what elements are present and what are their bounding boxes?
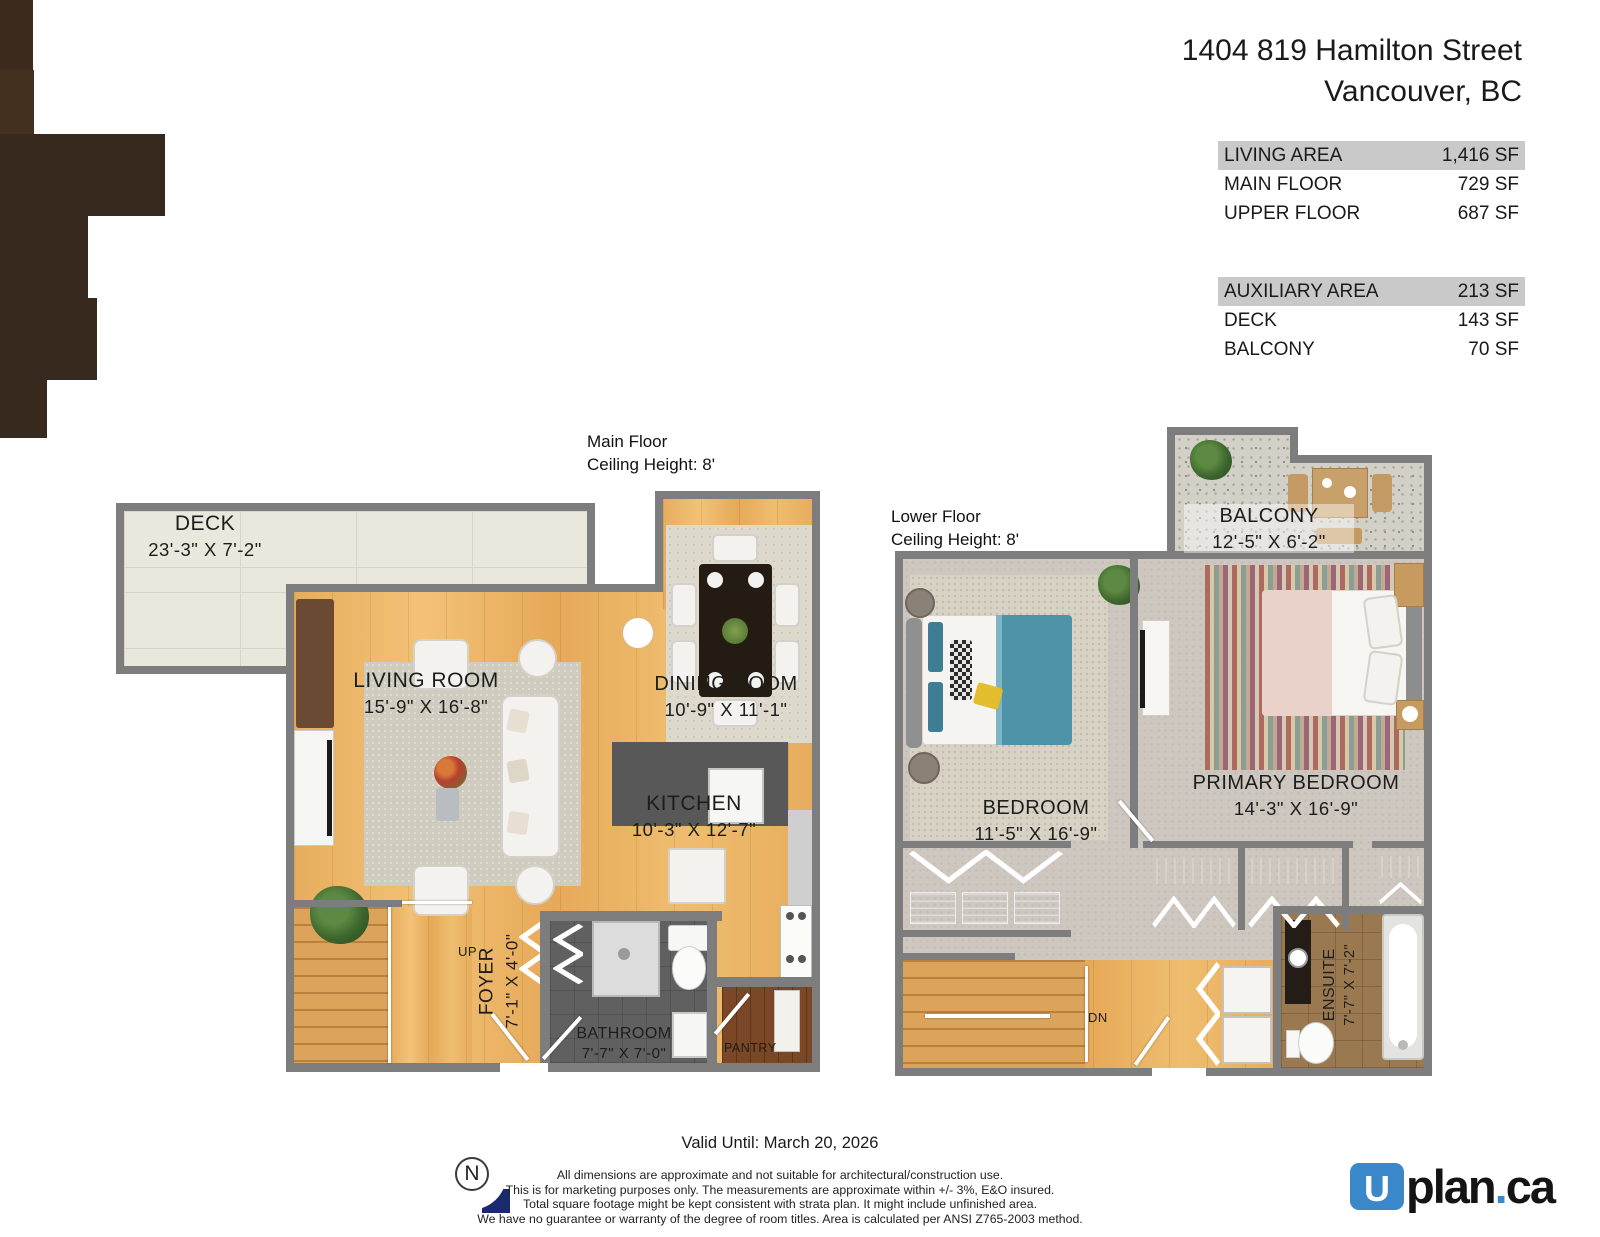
closet-hangers <box>1156 858 1232 884</box>
patio-cup <box>1344 486 1356 498</box>
room-dims: 10'-3" X 12'-7" <box>608 819 780 841</box>
pillow <box>928 622 943 672</box>
address-line1: 1404 819 Hamilton Street <box>1182 30 1522 71</box>
console-cabinet <box>296 599 334 728</box>
wall <box>1143 841 1353 848</box>
bed-headboard <box>906 618 922 748</box>
disclaimer-line: Total square footage might be kept consi… <box>200 1197 1360 1212</box>
area-label: UPPER FLOOR <box>1224 203 1360 225</box>
area-label: LIVING AREA <box>1224 145 1342 167</box>
area-summary-tables: LIVING AREA1,416 SF MAIN FLOOR729 SF UPP… <box>1218 141 1525 364</box>
corner-closet <box>0 380 47 438</box>
plate <box>748 572 764 588</box>
room-name: DINING ROOM <box>640 672 812 696</box>
table-gap <box>1218 228 1525 277</box>
blanket-trim <box>996 615 1002 745</box>
shower-drain <box>618 948 630 960</box>
disclaimer-line: This is for marketing purposes only. The… <box>200 1183 1360 1198</box>
logo-text: plan.ca <box>1406 1159 1554 1214</box>
wire-shelf <box>1014 892 1060 924</box>
bedroom-closet <box>0 134 165 216</box>
room-dims: 15'-9" X 16'-8" <box>340 696 512 718</box>
property-address: 1404 819 Hamilton Street Vancouver, BC <box>1182 30 1522 112</box>
north-letter: N <box>464 1162 479 1186</box>
room-name: LIVING ROOM <box>340 668 512 693</box>
linen-cabinet <box>1222 966 1272 1014</box>
linen-cabinet <box>1222 1016 1272 1064</box>
armchair <box>413 865 469 916</box>
deck-label: DECK 23'-3" X 7'-2" <box>120 511 290 561</box>
caption-line: Lower Floor <box>891 505 1019 528</box>
ensuite-label: ENSUITE 7'-7" X 7'-2" <box>1320 910 1360 1060</box>
area-label: MAIN FLOOR <box>1224 174 1342 196</box>
bifold-door-icon <box>1379 882 1422 904</box>
logo-plan: plan <box>1406 1160 1495 1213</box>
pillow <box>1363 594 1404 650</box>
room-dims: 10'-9" X 11'-1" <box>640 699 812 721</box>
wall <box>587 503 595 592</box>
wall <box>1290 455 1432 463</box>
wall <box>286 584 663 592</box>
nightstand <box>905 588 935 618</box>
room-name: FOYER <box>476 947 497 1015</box>
bifold-door-icon <box>1152 896 1236 928</box>
area-label: AUXILIARY AREA <box>1224 281 1379 303</box>
pantry-label: PANTRY <box>724 1041 777 1055</box>
caption-line: Ceiling Height: 8' <box>587 453 715 476</box>
primary-closet <box>0 216 88 298</box>
wall <box>903 930 1071 937</box>
disclaimer-line: All dimensions are approximate and not s… <box>200 1168 1360 1183</box>
wall <box>286 584 294 1072</box>
wall <box>540 911 722 921</box>
room-name: ENSUITE <box>1320 910 1339 1060</box>
wall <box>1273 906 1281 1076</box>
bathroom-closet <box>0 70 34 134</box>
flower-bouquet <box>434 756 467 789</box>
closet-hangers <box>1381 856 1420 878</box>
wall <box>655 491 663 592</box>
tub-faucet <box>1398 1040 1408 1050</box>
patio-cup <box>1322 478 1332 488</box>
room-dims: 7'-1" X 4'-0" <box>502 899 522 1064</box>
table-row: LIVING AREA1,416 SF <box>1218 141 1525 170</box>
wall <box>717 977 812 987</box>
bed-blanket <box>1000 615 1072 745</box>
address-line2: Vancouver, BC <box>1182 71 1522 112</box>
bathtub-basin <box>1389 924 1417 1048</box>
wall <box>1130 559 1138 848</box>
wall <box>812 491 820 1072</box>
sofa-pillow <box>507 811 530 836</box>
uplan-logo: U plan.ca <box>1350 1159 1554 1214</box>
wall <box>1238 848 1245 930</box>
room-name: PRIMARY BEDROOM <box>1186 771 1406 795</box>
area-value: 143 SF <box>1458 310 1519 332</box>
dining-room-label: DINING ROOM 10'-9" X 11'-1" <box>640 672 812 721</box>
plant <box>310 886 369 944</box>
logo-ca: ca <box>1506 1160 1554 1213</box>
area-value: 687 SF <box>1458 203 1519 225</box>
stove <box>780 905 812 979</box>
bifold-door-icon <box>1196 962 1220 1066</box>
table-row: UPPER FLOOR687 SF <box>1218 199 1525 228</box>
wall <box>1167 427 1298 435</box>
desk <box>1394 563 1424 607</box>
living-room-label: LIVING ROOM 15'-9" X 16'-8" <box>340 668 512 718</box>
area-value: 729 SF <box>1458 174 1519 196</box>
bifold-door-icon <box>553 924 583 984</box>
closet-hangers <box>1251 858 1336 884</box>
room-name: BALCONY <box>1184 504 1354 528</box>
wall <box>1424 455 1432 559</box>
wall <box>116 503 595 511</box>
wall <box>1424 551 1432 1076</box>
wire-shelf <box>910 892 956 924</box>
lower-floor-caption: Lower Floor Ceiling Height: 8' <box>891 505 1019 551</box>
wall <box>903 953 1015 960</box>
area-label: BALCONY <box>1224 339 1315 361</box>
bifold-door-icon <box>908 850 1064 884</box>
centerpiece-plant <box>722 618 748 644</box>
burner <box>798 955 806 963</box>
coffee-table <box>436 788 459 821</box>
primary-blanket <box>1262 590 1332 716</box>
dn-label: DN <box>1088 1010 1108 1025</box>
dining-chair <box>712 534 758 562</box>
caption-line: Main Floor <box>587 430 715 453</box>
balcony-plant <box>1190 440 1232 480</box>
kitchen-island <box>668 848 726 904</box>
kitchen-label: KITCHEN 10'-3" X 12'-7" <box>608 791 780 841</box>
door-opening <box>500 1063 548 1072</box>
room-dims: 12'-5" X 6'-2" <box>1184 531 1354 553</box>
pillow <box>1363 650 1404 706</box>
disclaimer-line: We have no guarantee or warranty of the … <box>200 1212 1360 1227</box>
pillow <box>928 682 943 732</box>
tv-screen <box>327 740 332 836</box>
stair-railing <box>925 1014 1050 1018</box>
table-row: BALCONY70 SF <box>1218 335 1525 364</box>
uplan-logo-mark-icon: U <box>1350 1163 1404 1210</box>
stair-railing <box>402 901 472 904</box>
valid-until: Valid Until: March 20, 2026 <box>300 1134 1260 1153</box>
wall <box>294 900 402 907</box>
wall <box>707 911 717 1072</box>
area-value: 213 SF <box>1458 281 1519 303</box>
lamp <box>1402 706 1418 722</box>
room-name: DECK <box>120 511 290 536</box>
area-label: DECK <box>1224 310 1277 332</box>
pantry-shelf <box>774 990 800 1052</box>
logo-dot: . <box>1495 1160 1506 1213</box>
stair-landing <box>390 907 472 1063</box>
primary-closet <box>0 298 97 380</box>
room-dims: 23'-3" X 7'-2" <box>120 539 290 561</box>
plate <box>707 572 723 588</box>
north-arrow-icon: N <box>455 1157 489 1191</box>
deck-floor <box>124 592 286 666</box>
foyer-label: FOYER 7'-1" X 4'-0" <box>476 899 522 1064</box>
room-name: BEDROOM <box>950 796 1122 820</box>
table-row: MAIN FLOOR729 SF <box>1218 170 1525 199</box>
area-value: 70 SF <box>1468 339 1519 361</box>
room-name: KITCHEN <box>608 791 780 816</box>
tv-console <box>1142 620 1170 716</box>
sofa-pillow <box>506 758 530 783</box>
logo-u: U <box>1364 1171 1390 1207</box>
table-row: AUXILIARY AREA213 SF <box>1218 277 1525 306</box>
dining-chair <box>671 583 697 627</box>
entry-closet <box>0 0 33 70</box>
room-dims: 7'-7" X 7'-2" <box>1342 910 1359 1060</box>
wall <box>116 666 294 674</box>
wire-shelf <box>962 892 1008 924</box>
wall <box>286 1063 820 1072</box>
floorplan-page: 1404 819 Hamilton Street Vancouver, BC L… <box>0 0 1600 1237</box>
room-dims: 14'-3" X 16'-9" <box>1186 798 1406 820</box>
door-opening <box>1152 1068 1206 1076</box>
burner <box>786 912 794 920</box>
bedroom-label: BEDROOM 11'-5" X 16'-9" <box>950 796 1122 845</box>
sink <box>1288 948 1308 968</box>
room-name: BATHROOM <box>544 1024 704 1043</box>
balcony-label: BALCONY 12'-5" X 6'-2" <box>1184 504 1354 553</box>
bathroom-label: BATHROOM 7'-7" X 7'-0" <box>544 1024 704 1063</box>
disclaimer: All dimensions are approximate and not s… <box>200 1168 1360 1226</box>
stair-divider <box>388 907 391 1063</box>
wall <box>895 551 903 1076</box>
burner <box>798 912 806 920</box>
accent-pillow <box>950 640 972 700</box>
toilet-bowl <box>672 946 706 990</box>
dining-chair <box>774 583 800 627</box>
round-table <box>623 618 653 648</box>
room-dims: 11'-5" X 16'-9" <box>950 823 1122 845</box>
caption-line: Ceiling Height: 8' <box>891 528 1019 551</box>
area-value: 1,416 SF <box>1442 145 1519 167</box>
side-table <box>518 639 557 678</box>
main-floor-caption: Main Floor Ceiling Height: 8' <box>587 430 715 476</box>
nightstand <box>908 752 940 784</box>
burner <box>786 955 794 963</box>
room-dims: 7'-7" X 7'-0" <box>544 1045 704 1063</box>
wall <box>1372 841 1432 848</box>
wall <box>1167 427 1175 559</box>
wall <box>655 491 820 499</box>
table-row: DECK143 SF <box>1218 306 1525 335</box>
patio-chair <box>1372 474 1392 512</box>
up-label: UP <box>458 944 477 959</box>
tv-screen <box>1140 630 1145 708</box>
primary-bedroom-label: PRIMARY BEDROOM 14'-3" X 16'-9" <box>1186 771 1406 820</box>
